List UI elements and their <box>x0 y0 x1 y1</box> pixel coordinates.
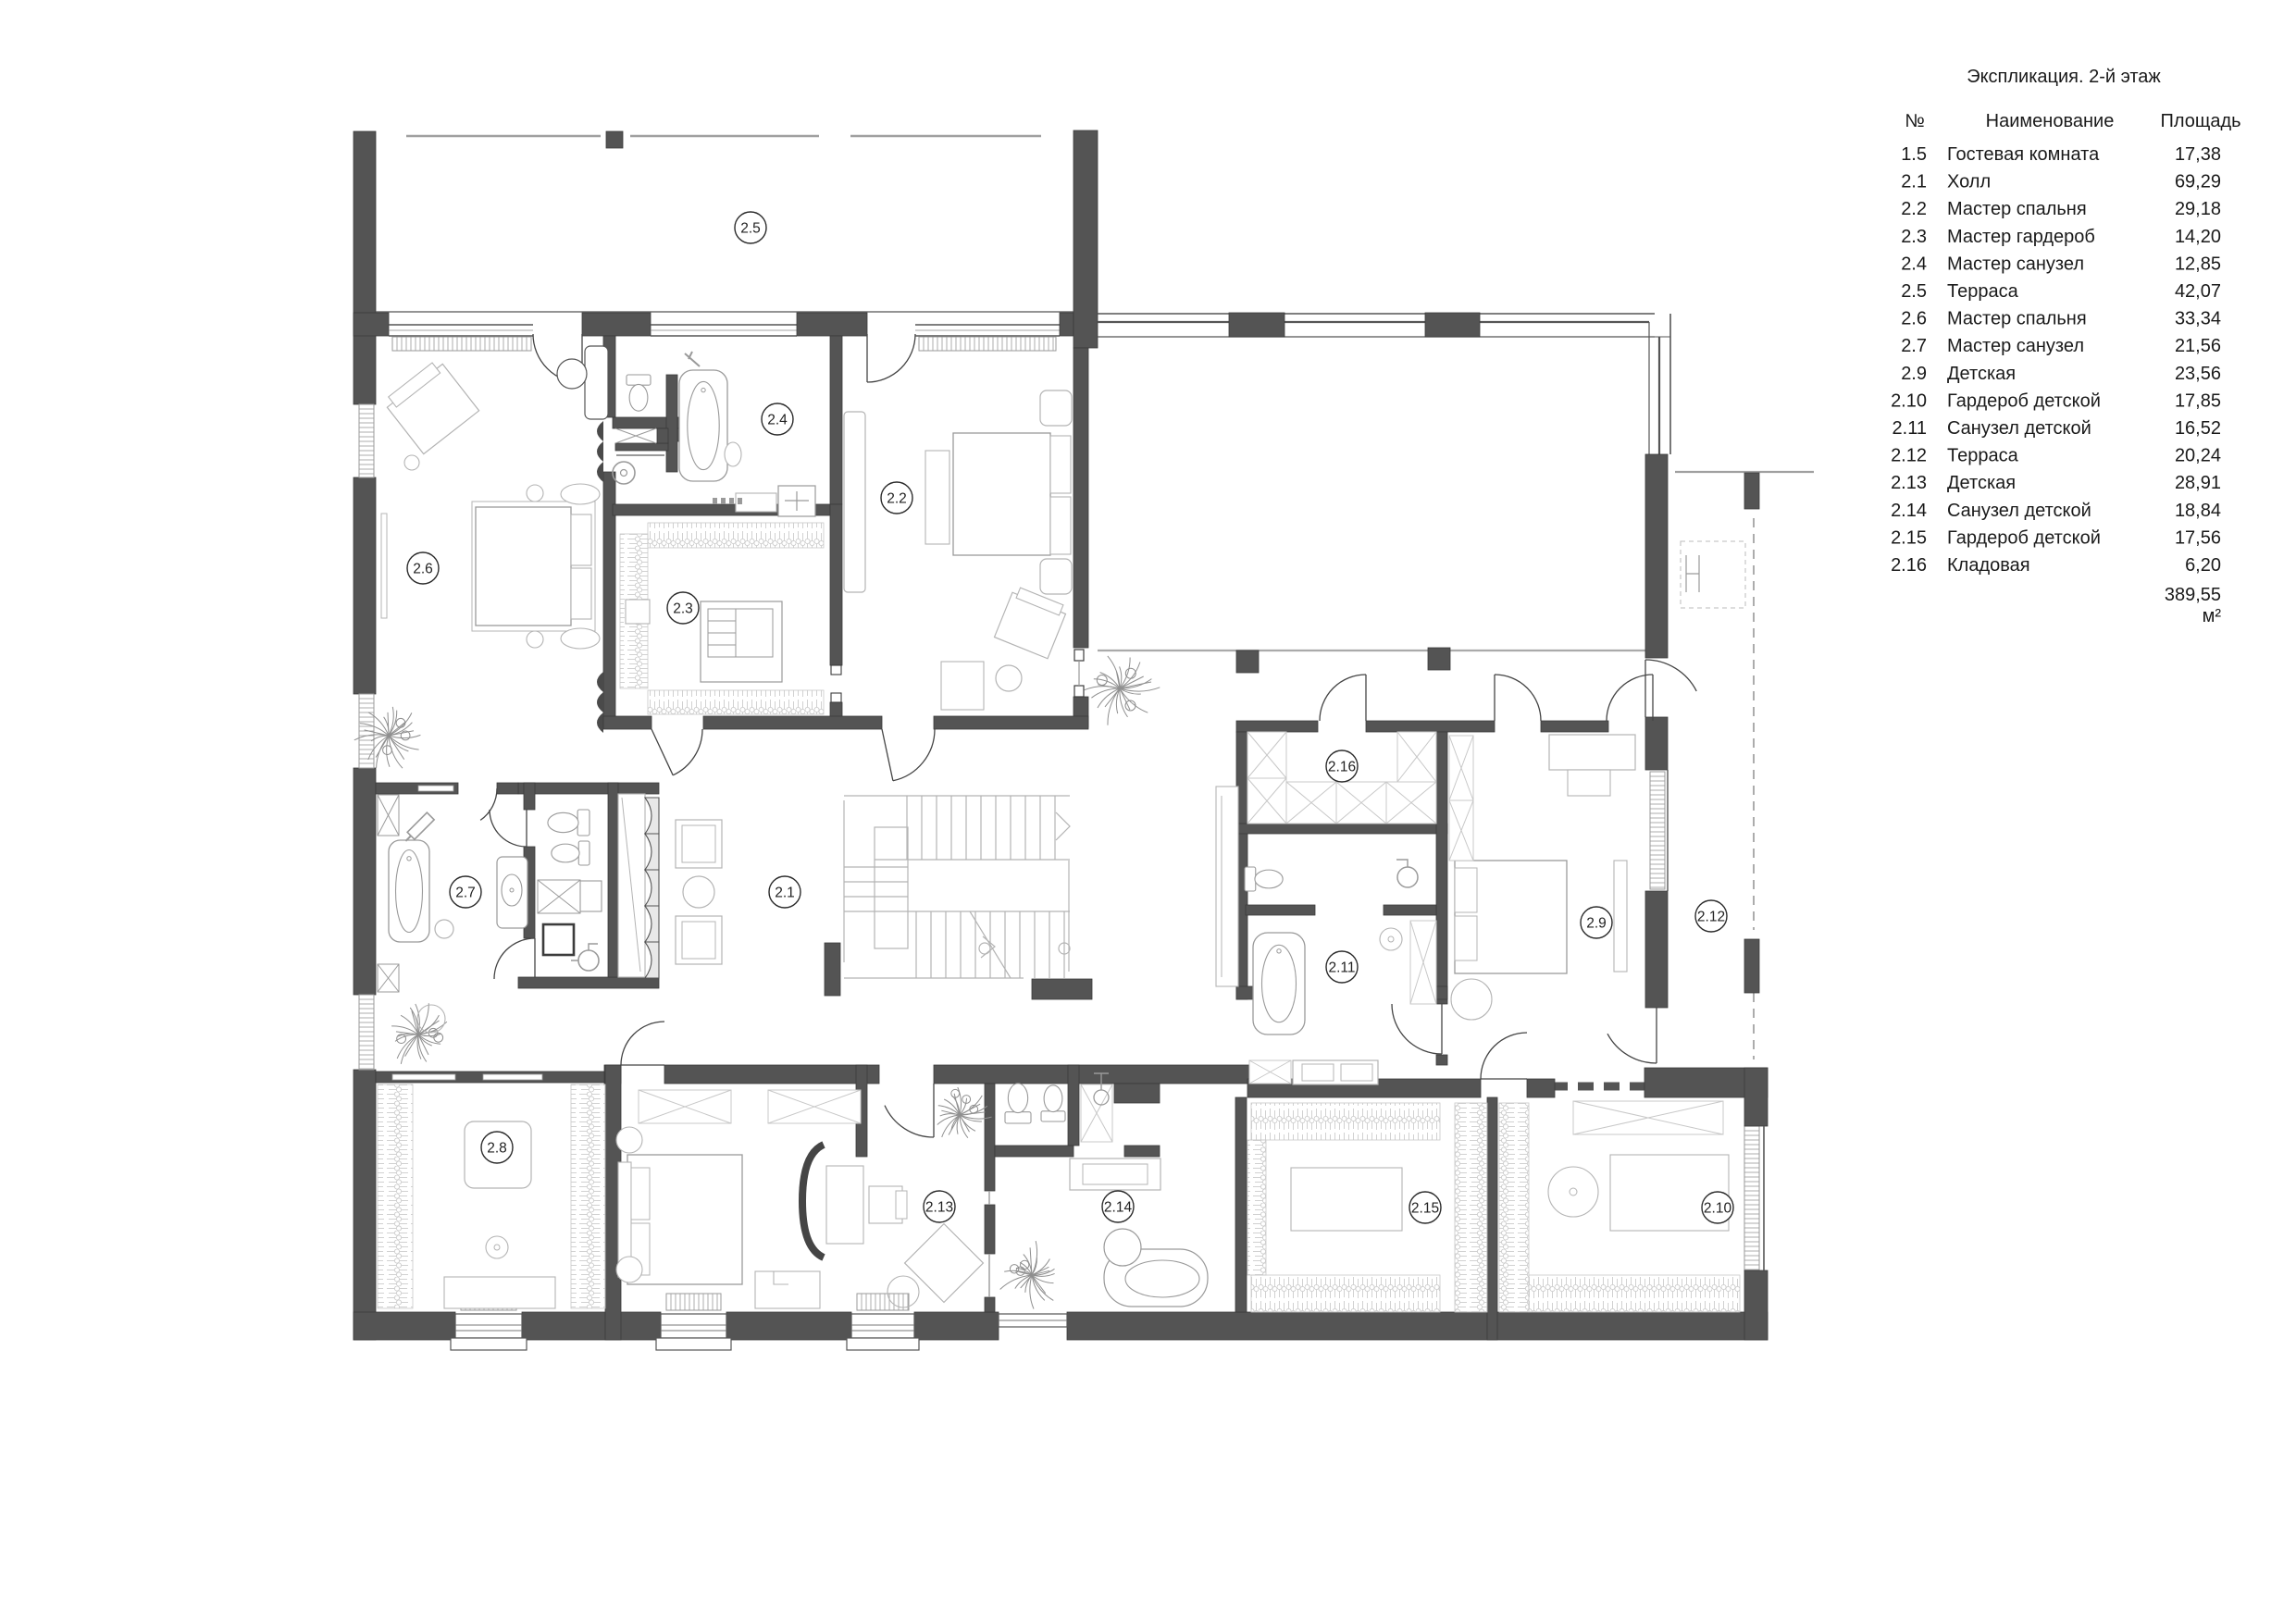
svg-text:Площадь: Площадь <box>2160 111 2240 131</box>
svg-text:Детская: Детская <box>1947 473 2016 493</box>
svg-text:21,56: 21,56 <box>2175 336 2221 356</box>
svg-text:2.9: 2.9 <box>1586 916 1607 932</box>
svg-text:Экспликация. 2-й этаж: Экспликация. 2-й этаж <box>1967 67 2161 87</box>
svg-text:17,38: 17,38 <box>2175 144 2221 165</box>
svg-text:2.3: 2.3 <box>1901 227 1927 247</box>
svg-text:2.4: 2.4 <box>767 413 788 428</box>
svg-text:Терраса: Терраса <box>1947 446 2019 466</box>
svg-text:2.15: 2.15 <box>1891 527 1927 548</box>
svg-text:Терраса: Терраса <box>1947 281 2019 302</box>
svg-text:2.7: 2.7 <box>455 886 476 901</box>
svg-text:389,55: 389,55 <box>2165 585 2221 605</box>
svg-text:2.8: 2.8 <box>487 1141 507 1157</box>
svg-text:2.3: 2.3 <box>673 601 693 617</box>
svg-text:Кладовая: Кладовая <box>1947 555 2030 576</box>
svg-text:Холл: Холл <box>1947 172 1991 192</box>
svg-text:2.12: 2.12 <box>1891 446 1927 466</box>
svg-text:33,34: 33,34 <box>2175 309 2221 329</box>
svg-text:2.16: 2.16 <box>1891 555 1927 576</box>
svg-text:2.14: 2.14 <box>1104 1200 1133 1216</box>
svg-text:12,85: 12,85 <box>2175 254 2221 274</box>
svg-text:2.1: 2.1 <box>1901 172 1927 192</box>
svg-text:Санузел детской: Санузел детской <box>1947 501 2091 521</box>
svg-text:2.5: 2.5 <box>740 221 761 237</box>
svg-text:2.2: 2.2 <box>887 491 907 507</box>
svg-text:Гостевая комната: Гостевая комната <box>1947 144 2100 165</box>
svg-text:29,18: 29,18 <box>2175 199 2221 219</box>
svg-text:2.6: 2.6 <box>413 562 433 577</box>
svg-text:Мастер санузел: Мастер санузел <box>1947 254 2084 274</box>
svg-text:2.13: 2.13 <box>925 1200 953 1216</box>
svg-text:Детская: Детская <box>1947 364 2016 384</box>
svg-text:2.5: 2.5 <box>1901 281 1927 302</box>
svg-text:2.1: 2.1 <box>775 886 795 901</box>
svg-text:Мастер спальня: Мастер спальня <box>1947 199 2087 219</box>
svg-text:Мастер гардероб: Мастер гардероб <box>1947 227 2095 247</box>
svg-text:Наименование: Наименование <box>1986 111 2115 131</box>
svg-text:Мастер спальня: Мастер спальня <box>1947 309 2087 329</box>
svg-text:2.11: 2.11 <box>1328 960 1355 976</box>
svg-text:23,56: 23,56 <box>2175 364 2221 384</box>
svg-text:2.12: 2.12 <box>1697 910 1725 925</box>
svg-text:2.11: 2.11 <box>1893 418 1927 439</box>
svg-text:2.14: 2.14 <box>1891 501 1927 521</box>
svg-text:Мастер санузел: Мастер санузел <box>1947 336 2084 356</box>
svg-text:17,85: 17,85 <box>2175 390 2221 411</box>
svg-text:14,20: 14,20 <box>2175 227 2221 247</box>
svg-text:Санузел детской: Санузел детской <box>1947 418 2091 439</box>
svg-text:69,29: 69,29 <box>2175 172 2221 192</box>
svg-text:18,84: 18,84 <box>2175 501 2221 521</box>
svg-text:2.6: 2.6 <box>1901 309 1927 329</box>
svg-text:28,91: 28,91 <box>2175 473 2221 493</box>
svg-text:2.13: 2.13 <box>1891 473 1927 493</box>
svg-text:Гардероб детской: Гардероб детской <box>1947 527 2101 548</box>
svg-text:2.16: 2.16 <box>1328 760 1356 775</box>
svg-text:42,07: 42,07 <box>2175 281 2221 302</box>
svg-text:1.5: 1.5 <box>1901 144 1927 165</box>
svg-text:16,52: 16,52 <box>2175 418 2221 439</box>
svg-text:2.15: 2.15 <box>1411 1201 1439 1217</box>
svg-text:2.9: 2.9 <box>1901 364 1927 384</box>
svg-text:Гардероб детской: Гардероб детской <box>1947 390 2101 411</box>
svg-text:м²: м² <box>2203 606 2222 626</box>
svg-text:6,20: 6,20 <box>2185 555 2221 576</box>
svg-text:2.4: 2.4 <box>1901 254 1927 274</box>
svg-text:2.10: 2.10 <box>1704 1201 1732 1217</box>
svg-text:№: № <box>1905 111 1924 131</box>
svg-text:2.7: 2.7 <box>1901 336 1927 356</box>
svg-text:2.2: 2.2 <box>1901 199 1927 219</box>
svg-text:20,24: 20,24 <box>2175 446 2221 466</box>
svg-text:17,56: 17,56 <box>2175 527 2221 548</box>
svg-text:2.10: 2.10 <box>1891 390 1927 411</box>
